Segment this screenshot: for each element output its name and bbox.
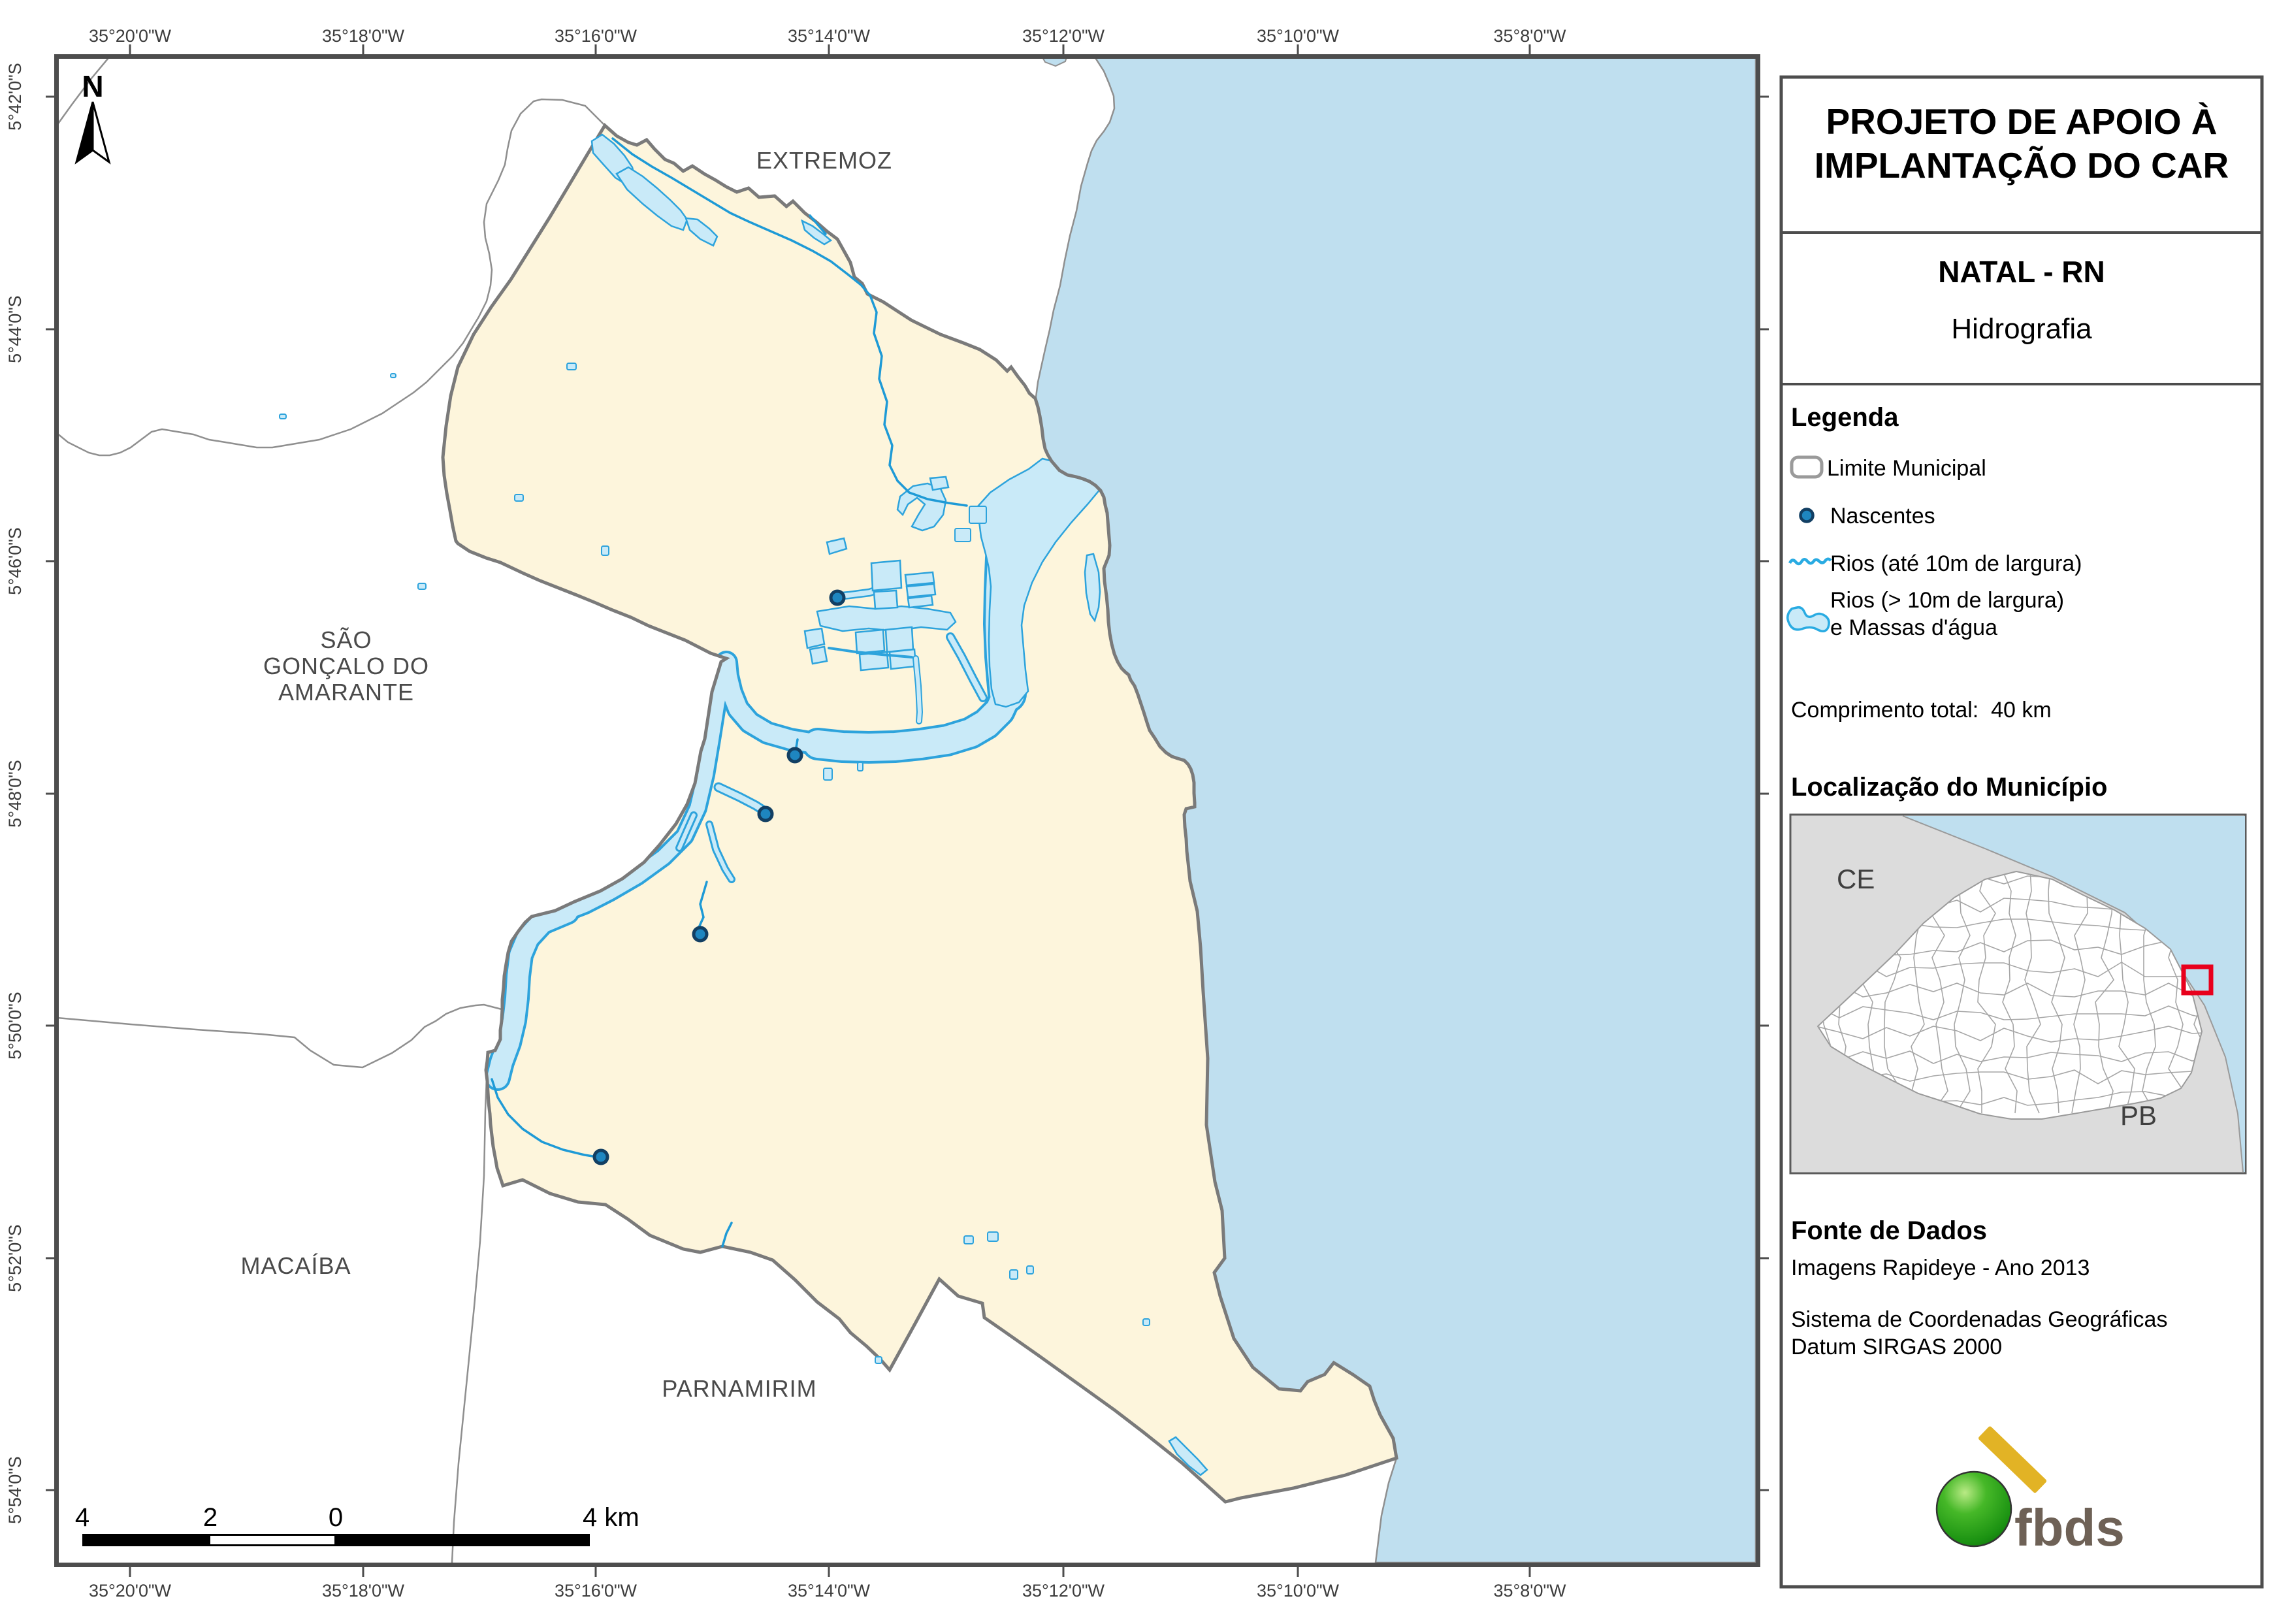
- svg-text:Sistema de Coordenadas Geográf: Sistema de Coordenadas Geográficas: [1791, 1307, 2167, 1332]
- svg-text:N: N: [82, 69, 103, 103]
- svg-text:35°14'0"W: 35°14'0"W: [788, 26, 871, 46]
- svg-text:35°16'0"W: 35°16'0"W: [555, 1581, 638, 1600]
- svg-text:SÃO: SÃO: [320, 626, 372, 653]
- svg-text:35°12'0"W: 35°12'0"W: [1022, 1581, 1105, 1600]
- svg-text:35°20'0"W: 35°20'0"W: [89, 26, 172, 46]
- svg-text:5°46'0"S: 5°46'0"S: [5, 527, 25, 595]
- svg-text:PB: PB: [2120, 1100, 2157, 1131]
- svg-text:35°8'0"W: 35°8'0"W: [1493, 1581, 1566, 1600]
- svg-text:2: 2: [203, 1503, 218, 1532]
- svg-text:5°44'0"S: 5°44'0"S: [5, 295, 25, 363]
- svg-text:4 km: 4 km: [583, 1503, 639, 1532]
- svg-text:PROJETO DE APOIO À: PROJETO DE APOIO À: [1826, 101, 2217, 142]
- svg-text:Localização do Município: Localização do Município: [1791, 773, 2108, 802]
- svg-text:GONÇALO DO: GONÇALO DO: [263, 653, 429, 679]
- svg-text:fbds: fbds: [2014, 1499, 2125, 1557]
- svg-text:4: 4: [75, 1503, 89, 1532]
- svg-text:Rios (> 10m de largura): Rios (> 10m de largura): [1830, 588, 2064, 613]
- svg-text:IMPLANTAÇÃO DO CAR: IMPLANTAÇÃO DO CAR: [1815, 145, 2229, 186]
- svg-text:35°18'0"W: 35°18'0"W: [322, 26, 405, 46]
- svg-text:35°14'0"W: 35°14'0"W: [788, 1581, 871, 1600]
- svg-text:35°20'0"W: 35°20'0"W: [89, 1581, 172, 1600]
- svg-text:CE: CE: [1837, 864, 1875, 894]
- svg-text:Hidrografia: Hidrografia: [1951, 313, 2092, 345]
- svg-text:Imagens Rapideye - Ano 2013: Imagens Rapideye - Ano 2013: [1791, 1256, 2090, 1280]
- svg-text:Comprimento total: 40 km: Comprimento total: 40 km: [1791, 698, 2052, 723]
- svg-text:35°10'0"W: 35°10'0"W: [1257, 1581, 1340, 1600]
- svg-text:Legenda: Legenda: [1791, 403, 1899, 432]
- svg-text:5°50'0"S: 5°50'0"S: [5, 992, 25, 1060]
- svg-text:MACAÍBA: MACAÍBA: [240, 1252, 351, 1279]
- svg-text:Nascentes: Nascentes: [1830, 504, 1935, 528]
- svg-text:Limite Municipal: Limite Municipal: [1827, 456, 1986, 481]
- svg-text:5°52'0"S: 5°52'0"S: [5, 1224, 25, 1292]
- svg-text:Rios (até 10m de largura): Rios (até 10m de largura): [1830, 551, 2082, 576]
- svg-text:e Massas d'água: e Massas d'água: [1830, 615, 1997, 640]
- svg-text:35°12'0"W: 35°12'0"W: [1022, 26, 1105, 46]
- svg-text:35°8'0"W: 35°8'0"W: [1493, 26, 1566, 46]
- svg-text:0: 0: [329, 1503, 343, 1532]
- svg-text:35°10'0"W: 35°10'0"W: [1257, 26, 1340, 46]
- svg-text:Datum SIRGAS 2000: Datum SIRGAS 2000: [1791, 1335, 2002, 1359]
- svg-text:Fonte de Dados: Fonte de Dados: [1791, 1216, 1987, 1245]
- svg-text:EXTREMOZ: EXTREMOZ: [756, 147, 892, 174]
- svg-text:NATAL - RN: NATAL - RN: [1938, 255, 2105, 289]
- svg-text:5°54'0"S: 5°54'0"S: [5, 1456, 25, 1524]
- svg-text:5°48'0"S: 5°48'0"S: [5, 760, 25, 828]
- svg-text:35°18'0"W: 35°18'0"W: [322, 1581, 405, 1600]
- svg-text:PARNAMIRIM: PARNAMIRIM: [662, 1375, 816, 1402]
- svg-text:5°42'0"S: 5°42'0"S: [5, 63, 25, 131]
- svg-text:AMARANTE: AMARANTE: [278, 679, 414, 706]
- svg-text:35°16'0"W: 35°16'0"W: [555, 26, 638, 46]
